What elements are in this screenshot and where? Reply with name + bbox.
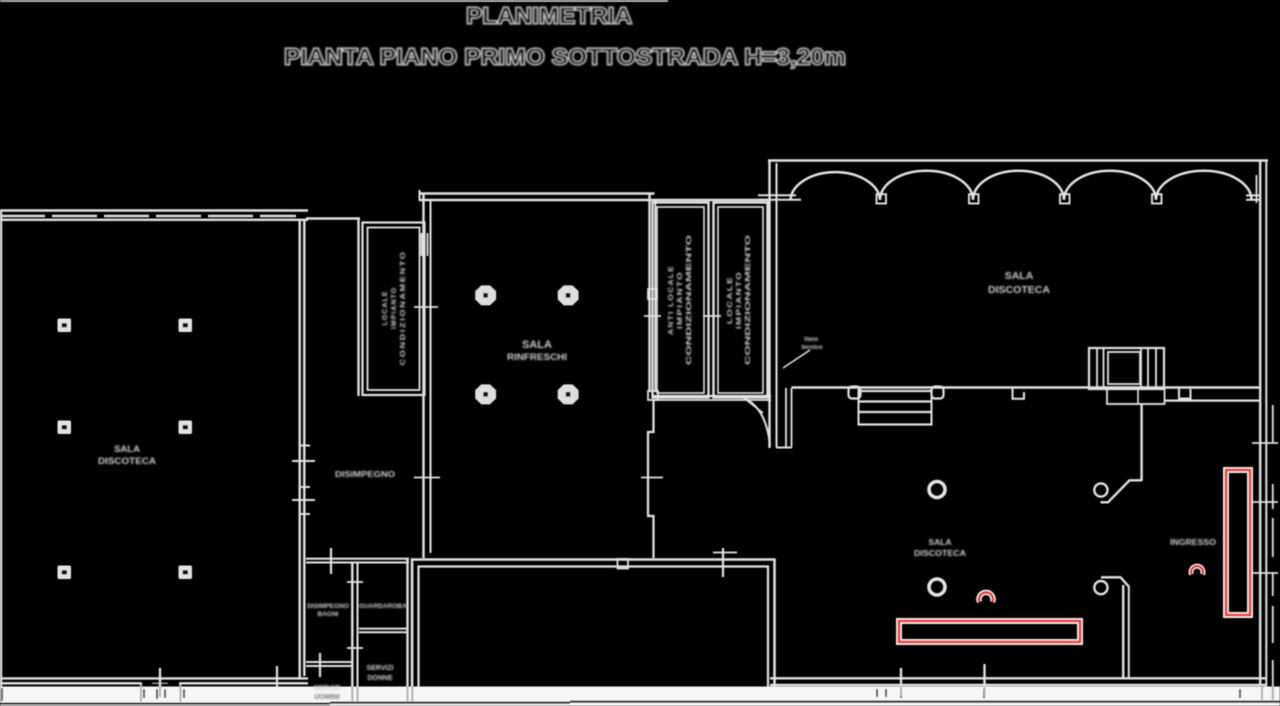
- svg-text:INGRESSO: INGRESSO: [1170, 537, 1216, 547]
- svg-text:IMPIANTO: IMPIANTO: [736, 271, 743, 329]
- svg-text:SALA: SALA: [928, 537, 951, 547]
- svg-text:DISCOTECA: DISCOTECA: [988, 284, 1050, 296]
- svg-text:RINFRESCHI: RINFRESCHI: [507, 352, 567, 363]
- svg-text:SERVIZI: SERVIZI: [366, 665, 393, 672]
- svg-text:SALA: SALA: [522, 339, 552, 351]
- svg-text:SALA: SALA: [1005, 270, 1034, 282]
- svg-text:DISIMPEGNO: DISIMPEGNO: [335, 469, 395, 479]
- svg-text:PLANIMETRIA: PLANIMETRIA: [466, 3, 632, 29]
- svg-text:DISCOTECA: DISCOTECA: [914, 548, 966, 558]
- svg-text:DISIMPEGNO: DISIMPEGNO: [307, 603, 349, 610]
- svg-text:UOMINI: UOMINI: [314, 694, 339, 701]
- svg-text:SERVIZI: SERVIZI: [313, 685, 340, 692]
- svg-text:ANTI LOCALE: ANTI LOCALE: [668, 265, 675, 335]
- svg-text:GUARDAROBA: GUARDAROBA: [359, 603, 407, 610]
- svg-text:DONNE: DONNE: [367, 675, 393, 682]
- svg-text:tecnico: tecnico: [801, 345, 822, 351]
- svg-text:CONDIZIONAMENTO: CONDIZIONAMENTO: [745, 234, 752, 365]
- svg-text:BAGNI: BAGNI: [318, 611, 339, 618]
- svg-text:IMPIANTO: IMPIANTO: [677, 271, 684, 329]
- svg-text:DISCOTECA: DISCOTECA: [98, 456, 156, 467]
- svg-text:LOCALE: LOCALE: [382, 291, 389, 326]
- svg-text:CONDIZIONAMENTO: CONDIZIONAMENTO: [400, 251, 407, 366]
- svg-text:IMPIANTO: IMPIANTO: [391, 287, 398, 329]
- svg-text:Vano: Vano: [804, 337, 819, 343]
- svg-text:CONDIZIONAMENTO: CONDIZIONAMENTO: [686, 234, 693, 365]
- svg-text:SALA: SALA: [114, 444, 140, 455]
- svg-text:LOCALE: LOCALE: [727, 276, 734, 324]
- svg-text:PIANTA PIANO PRIMO SOTTOSTRADA: PIANTA PIANO PRIMO SOTTOSTRADA H=3,20m: [284, 44, 846, 70]
